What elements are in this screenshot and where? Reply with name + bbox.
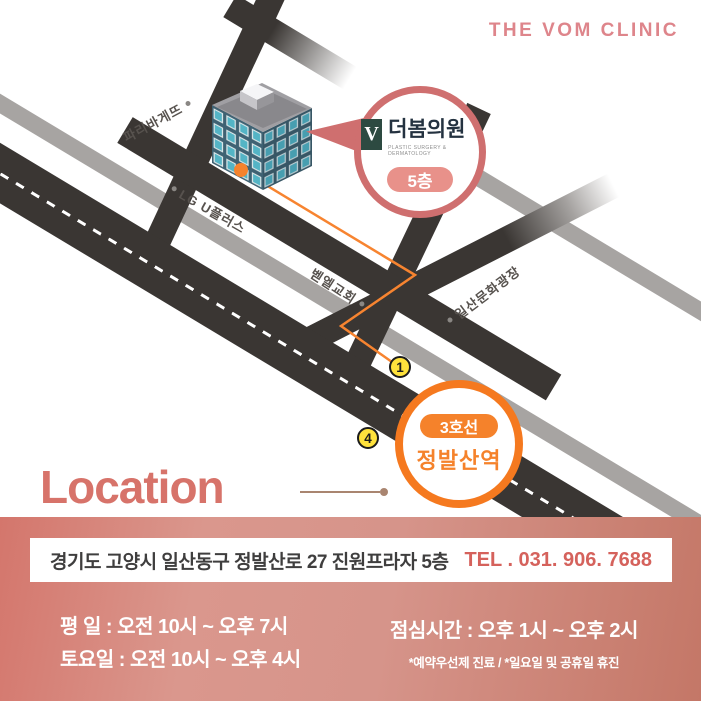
location-underline <box>300 491 380 493</box>
exit-badge-4: 4 <box>357 427 379 449</box>
lunch-hours: 점심시간 : 오후 1시 ~ 오후 2시 <box>388 614 640 643</box>
brand-title: THE VOM CLINIC <box>489 20 679 42</box>
location-title: Location <box>40 460 224 514</box>
hours-note: *예약우선제 진료 / *일요일 및 공휴일 휴진 <box>388 652 640 671</box>
street-label-dot <box>171 185 178 192</box>
hours-weekday: 평 일 : 오전 10시 ~ 오후 7시 <box>60 611 301 644</box>
clinic-name-block: 더봄의원 PLASTIC SURGERY & DERMATOLOGY <box>388 113 479 157</box>
tel-text: TEL . 031. 906. 7688 <box>464 549 652 572</box>
address-bar: 경기도 고양시 일산동구 정발산로 27 진원프라자 5층 TEL . 031.… <box>30 538 672 582</box>
address-text: 경기도 고양시 일산동구 정발산로 27 진원프라자 5층 <box>50 547 448 574</box>
clinic-location-poster: 파리바게뜨 LG U플러스 벧엘교회 일산문화광장 V 더봄의원 PLASTIC… <box>0 0 701 701</box>
subway-station-circle: 3호선 정발산역 <box>395 380 523 508</box>
footer-info-band: 경기도 고양시 일산동구 정발산로 27 진원프라자 5층 TEL . 031.… <box>0 517 701 701</box>
clinic-name: 더봄의원 <box>388 113 479 143</box>
hours-block: 평 일 : 오전 10시 ~ 오후 7시 토요일 : 오전 10시 ~ 오후 4… <box>60 611 301 677</box>
hours-saturday: 토요일 : 오전 10시 ~ 오후 4시 <box>60 644 301 677</box>
street-label-dot <box>184 100 191 107</box>
clinic-subtitle: PLASTIC SURGERY & DERMATOLOGY <box>388 145 479 157</box>
exit-badge-1: 1 <box>389 356 411 378</box>
subway-station-name: 정발산역 <box>417 443 502 475</box>
clinic-logo-icon: V <box>361 119 382 150</box>
subway-line-badge: 3호선 <box>420 414 498 438</box>
clinic-logo-row: V 더봄의원 PLASTIC SURGERY & DERMATOLOGY <box>361 113 479 157</box>
floor-badge: 5층 <box>387 167 453 192</box>
clinic-location-dot <box>234 163 248 177</box>
clinic-building-illustration <box>200 75 320 200</box>
location-underline-dot <box>380 488 388 496</box>
clinic-callout-bubble: V 더봄의원 PLASTIC SURGERY & DERMATOLOGY 5층 <box>354 86 486 218</box>
building-icon <box>200 75 320 200</box>
lunch-block: 점심시간 : 오후 1시 ~ 오후 2시 *예약우선제 진료 / *일요일 및 … <box>388 614 640 671</box>
